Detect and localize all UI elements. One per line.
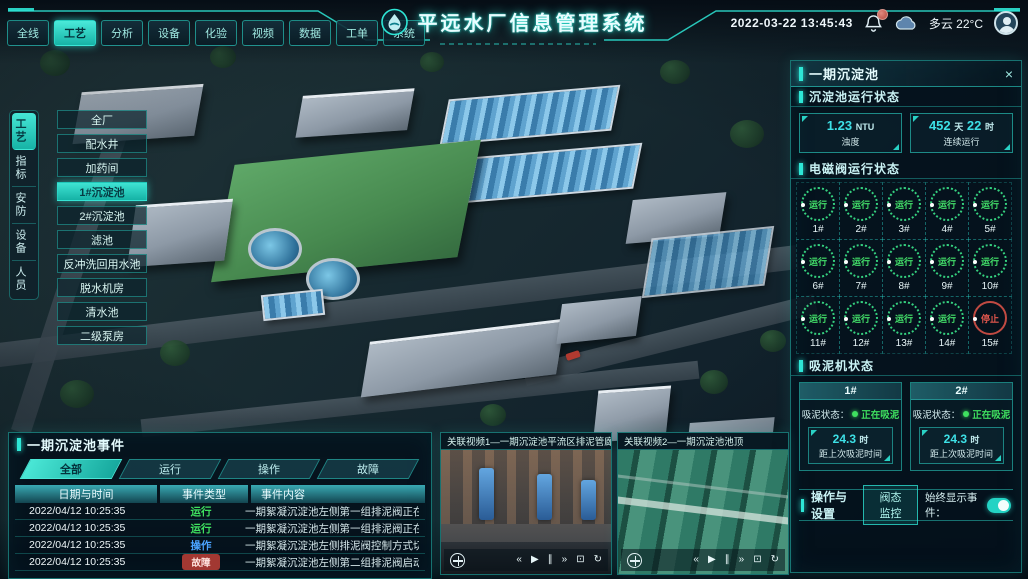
valve-id-label: 3# — [898, 224, 909, 235]
event-type-badge: 操作 — [191, 540, 212, 552]
column-header-type: 事件类型 — [160, 485, 248, 503]
valve-10#[interactable]: 运行10# — [968, 239, 1012, 297]
valve-ring-icon: 停止 — [973, 301, 1007, 335]
valve-ring-icon: 运行 — [887, 301, 921, 335]
valve-ring-icon: 运行 — [844, 187, 878, 221]
valve-12#[interactable]: 运行12# — [839, 296, 883, 354]
column-header-datetime: 日期与时间 — [15, 485, 157, 503]
valve-status-label: 运行 — [938, 312, 956, 325]
event-type: 故障 — [157, 554, 245, 570]
skip-back-icon[interactable]: « — [516, 555, 522, 565]
valve-status-label: 运行 — [809, 198, 827, 211]
valve-id-label: 6# — [812, 281, 823, 292]
valve-ring-icon: 运行 — [844, 301, 878, 335]
valve-id-label: 4# — [941, 224, 952, 235]
valve-id-label: 7# — [855, 281, 866, 292]
turbidity-value: 1.23 NTU — [827, 118, 874, 133]
valve-9#[interactable]: 运行9# — [925, 239, 969, 297]
side-tab-安防[interactable]: 安防 — [12, 187, 36, 224]
video-1-title: 关联视频1—一期沉淀池平流区排泥管廊 — [441, 433, 611, 450]
left-category-tabs: 工艺指标安防设备人员 — [9, 110, 39, 300]
alarm-bell-icon[interactable] — [864, 14, 883, 33]
event-content: 一期絮凝沉淀池左侧排泥阀控制方式切换为手动 — [245, 538, 419, 553]
valve-3#[interactable]: 运行3# — [882, 182, 926, 240]
event-type-badge: 故障 — [182, 554, 219, 570]
process-menu-item-滤池[interactable]: 滤池 — [57, 230, 147, 249]
nav-tab-工艺[interactable]: 工艺 — [54, 20, 96, 46]
mud-section-title: 吸泥机状态 — [809, 357, 874, 374]
process-menu-item-脱水机房[interactable]: 脱水机房 — [57, 278, 147, 297]
valve-section-title: 电磁阀运行状态 — [809, 160, 900, 177]
event-time: 2022/04/12 10:25:35 — [15, 522, 157, 534]
close-icon[interactable]: × — [1005, 67, 1013, 81]
run-status-section-header: 沉淀池运行状态 — [791, 87, 1021, 107]
valve-status-label: 停止 — [981, 312, 999, 325]
nav-tab-视频[interactable]: 视频 — [242, 20, 284, 46]
valve-id-label: 13# — [896, 338, 913, 349]
skip-back-icon[interactable]: « — [693, 555, 699, 565]
valve-status-label: 运行 — [852, 198, 870, 211]
valve-status-label: 运行 — [852, 255, 870, 268]
skip-forward-icon[interactable]: » — [739, 555, 745, 565]
mud-time-unit: 时 — [970, 435, 979, 445]
valve-status-label: 运行 — [809, 312, 827, 325]
nav-tab-全线[interactable]: 全线 — [7, 20, 49, 46]
valve-ring-icon: 运行 — [801, 301, 835, 335]
run-status-cards: 1.23 NTU 浊度 452 天 22 时 连续运行 — [791, 107, 1021, 159]
process-menu-item-二级泵房[interactable]: 二级泵房 — [57, 326, 147, 345]
events-table-body: 2022/04/12 10:25:35运行一期絮凝沉淀池左侧第一组排泥阀正在排泥… — [9, 503, 431, 571]
valve-status-label: 运行 — [938, 198, 956, 211]
mud-section-header: 吸泥机状态 — [791, 356, 1021, 376]
mud-time-unit: 时 — [859, 435, 868, 445]
valve-4#[interactable]: 运行4# — [925, 182, 969, 240]
side-tab-设备[interactable]: 设备 — [12, 224, 36, 261]
event-time: 2022/04/12 10:25:35 — [15, 556, 157, 568]
valve-status-label: 运行 — [895, 312, 913, 325]
turbidity-card: 1.23 NTU 浊度 — [799, 113, 902, 153]
valve-8#[interactable]: 运行8# — [882, 239, 926, 297]
uptime-days-unit: 天 — [954, 122, 963, 132]
mud-time-card: 24.3 时 距上次吸泥时间 — [808, 427, 893, 464]
valve-status-label: 运行 — [895, 255, 913, 268]
weather-cloud-icon — [894, 15, 918, 31]
event-content: 一期絮凝沉淀池左侧第二组排泥阀启动失败 — [245, 555, 419, 570]
event-time: 2022/04/12 10:25:35 — [15, 539, 157, 551]
event-table-row[interactable]: 2022/04/12 10:25:35运行一期絮凝沉淀池左侧第一组排泥阀正在排泥 — [15, 520, 425, 537]
event-type: 运行 — [157, 521, 245, 536]
ptz-control-icon[interactable] — [627, 553, 642, 568]
always-show-events-label: 始终显示事件： — [925, 490, 980, 520]
mud-time-number: 24.3 — [833, 432, 856, 446]
video-1-blue-pillar — [479, 468, 494, 520]
status-dot-icon — [963, 411, 969, 417]
mud-time-value: 24.3 时 — [833, 432, 869, 446]
video-2-controls: « ▶ ∥ » ⊡ ↻ — [621, 549, 785, 571]
right-panel-header: 一期沉淀池 × — [791, 61, 1021, 87]
event-table-row[interactable]: 2022/04/12 10:25:35运行一期絮凝沉淀池左侧第一组排泥阀正在排泥 — [15, 503, 425, 520]
mud-status-label: 吸泥状态： — [802, 407, 850, 421]
ops-settings-title: 操作与设置 — [811, 488, 856, 522]
nav-tab-数据[interactable]: 数据 — [289, 20, 331, 46]
valve-status-label: 运行 — [809, 255, 827, 268]
process-menu-item-全厂[interactable]: 全厂 — [57, 110, 147, 129]
events-panel: 一期沉淀池事件 全部运行操作故障 日期与时间 事件类型 事件内容 2022/04… — [8, 432, 432, 579]
run-status-title: 沉淀池运行状态 — [809, 88, 900, 105]
event-tab-运行[interactable]: 运行 — [119, 459, 222, 479]
playback-controls: « ▶ ∥ » ⊡ ↻ — [693, 555, 779, 565]
fullscreen-icon[interactable]: ⊡ — [576, 555, 584, 565]
ops-settings-section: 操作与设置 阀态监控 始终显示事件： — [799, 489, 1013, 521]
nav-tab-工单[interactable]: 工单 — [336, 20, 378, 46]
mud-time-caption: 距上次吸泥时间 — [819, 447, 882, 460]
mud-machine-cards: 1# 吸泥状态： 正在吸泥 24.3 时 距上次吸泥时间 2# 吸泥状态 — [791, 376, 1021, 477]
turbidity-unit: NTU — [856, 122, 875, 132]
play-icon[interactable]: ▶ — [708, 555, 716, 565]
valve-status-label: 运行 — [981, 198, 999, 211]
side-tab-工艺[interactable]: 工艺 — [12, 113, 36, 150]
event-type: 运行 — [157, 504, 245, 519]
valve-2#[interactable]: 运行2# — [839, 182, 883, 240]
related-video-panel-2: 关联视频2—一期沉淀池池顶 « ▶ ∥ » ⊡ ↻ — [617, 432, 789, 575]
mud-status-value: 正在吸泥 — [861, 407, 899, 421]
valve-ring-icon: 运行 — [973, 187, 1007, 221]
valve-section-header: 电磁阀运行状态 — [791, 159, 1021, 179]
event-content: 一期絮凝沉淀池左侧第一组排泥阀正在排泥 — [245, 504, 419, 519]
process-menu-item-清水池[interactable]: 清水池 — [57, 302, 147, 321]
mud-machine-card-2: 2# 吸泥状态： 正在吸泥 24.3 时 距上次吸泥时间 — [910, 382, 1013, 471]
pause-icon[interactable]: ∥ — [725, 555, 730, 565]
header-right-group: 2022-03-22 13:45:43 多云 22°C — [731, 0, 1018, 46]
title-block: 平远水厂信息管理系统 — [381, 7, 648, 36]
side-tab-人员[interactable]: 人员 — [12, 261, 36, 297]
mud-time-caption: 距上次吸泥时间 — [930, 447, 993, 460]
valve-monitor-button[interactable]: 阀态监控 — [863, 485, 918, 525]
event-table-row[interactable]: 2022/04/12 10:25:35故障一期絮凝沉淀池左侧第二组排泥阀启动失败 — [15, 554, 425, 571]
column-header-content: 事件内容 — [251, 485, 425, 503]
valve-15#[interactable]: 停止15# — [968, 296, 1012, 354]
uptime-value: 452 天 22 时 — [929, 118, 994, 133]
valve-status-label: 运行 — [981, 255, 999, 268]
mud-time-number: 24.3 — [944, 432, 967, 446]
mud-status-label: 吸泥状态： — [913, 407, 961, 421]
video-1-stream[interactable]: « ▶ ∥ » ⊡ ↻ — [441, 450, 611, 574]
nav-tab-设备[interactable]: 设备 — [148, 20, 190, 46]
valve-ring-icon: 运行 — [930, 301, 964, 335]
process-menu-item-配水井[interactable]: 配水井 — [57, 134, 147, 153]
video-2-title: 关联视频2—一期沉淀池池顶 — [618, 433, 788, 450]
right-panel-title: 一期沉淀池 — [809, 64, 999, 83]
event-content: 一期絮凝沉淀池左侧第一组排泥阀正在排泥 — [245, 521, 419, 536]
sedimentation-detail-panel: 一期沉淀池 × 沉淀池运行状态 1.23 NTU 浊度 452 天 22 时 — [790, 60, 1022, 573]
process-menu-item-反冲洗回用水池[interactable]: 反冲洗回用水池 — [57, 254, 147, 273]
always-show-events-toggle[interactable] — [987, 498, 1011, 513]
valve-ring-icon: 运行 — [930, 187, 964, 221]
process-area-menu: 全厂配水井加药间1#沉淀池2#沉淀池滤池反冲洗回用水池脱水机房清水池二级泵房 — [57, 110, 147, 345]
valve-ring-icon: 运行 — [801, 244, 835, 278]
mud-status-row: 吸泥状态： 正在吸泥 — [911, 407, 1012, 421]
valve-id-label: 12# — [853, 338, 870, 349]
turbidity-label: 浊度 — [841, 135, 859, 148]
fullscreen-icon[interactable]: ⊡ — [753, 555, 761, 565]
datetime-text: 2022-03-22 13:45:43 — [731, 16, 853, 30]
event-type-badge: 运行 — [191, 506, 212, 518]
mud-machine-id: 2# — [911, 383, 1012, 400]
playback-controls: « ▶ ∥ » ⊡ ↻ — [516, 555, 602, 565]
skip-forward-icon[interactable]: » — [562, 555, 568, 565]
app-logo-icon — [381, 8, 409, 36]
valve-id-label: 10# — [982, 281, 999, 292]
valve-status-grid: 运行1#运行2#运行3#运行4#运行5#运行6#运行7#运行8#运行9#运行10… — [791, 179, 1021, 356]
events-panel-title: 一期沉淀池事件 — [27, 435, 125, 454]
video-1-blue-pillar — [581, 480, 596, 520]
valve-ring-icon: 运行 — [844, 244, 878, 278]
video-2-stream[interactable]: « ▶ ∥ » ⊡ ↻ — [618, 450, 788, 574]
side-tab-指标[interactable]: 指标 — [12, 150, 36, 187]
related-video-panel-1: 关联视频1—一期沉淀池平流区排泥管廊 « ▶ ∥ » ⊡ ↻ — [440, 432, 612, 575]
event-tab-操作[interactable]: 操作 — [218, 459, 321, 479]
event-tab-label: 运行 — [159, 461, 181, 477]
nav-tab-化验[interactable]: 化验 — [195, 20, 237, 46]
valve-status-label: 运行 — [895, 198, 913, 211]
valve-status-label: 运行 — [938, 255, 956, 268]
event-filter-tabs: 全部运行操作故障 — [25, 459, 431, 479]
alert-badge — [877, 9, 888, 20]
event-type: 操作 — [157, 538, 245, 553]
pause-icon[interactable]: ∥ — [548, 555, 553, 565]
event-tab-label: 故障 — [357, 461, 379, 477]
events-panel-header: 一期沉淀池事件 — [9, 433, 431, 455]
video-1-blue-pillar — [537, 474, 552, 520]
nav-tab-分析[interactable]: 分析 — [101, 20, 143, 46]
event-time: 2022/04/12 10:25:35 — [15, 505, 157, 517]
valve-1#[interactable]: 运行1# — [796, 182, 840, 240]
main-nav-tabs: 全线工艺分析设备化验视频数据工单系统 — [7, 20, 425, 46]
event-tab-全部[interactable]: 全部 — [20, 459, 123, 479]
process-menu-item-1#沉淀池[interactable]: 1#沉淀池 — [57, 182, 147, 201]
valve-14#[interactable]: 运行14# — [925, 296, 969, 354]
valve-5#[interactable]: 运行5# — [968, 182, 1012, 240]
weather-text: 多云 22°C — [929, 15, 983, 32]
event-tab-故障[interactable]: 故障 — [317, 459, 420, 479]
valve-id-label: 1# — [812, 224, 823, 235]
event-type-badge: 运行 — [191, 523, 212, 535]
valve-id-label: 8# — [898, 281, 909, 292]
loop-icon[interactable]: ↻ — [771, 555, 779, 565]
play-icon[interactable]: ▶ — [531, 555, 539, 565]
event-tab-label: 操作 — [258, 461, 280, 477]
top-header: 全线工艺分析设备化验视频数据工单系统 平远水厂信息管理系统 2022-03-22… — [0, 0, 1028, 46]
turbidity-number: 1.23 — [827, 118, 852, 133]
valve-id-label: 15# — [982, 338, 999, 349]
video-1-controls: « ▶ ∥ » ⊡ ↻ — [444, 549, 608, 571]
mud-status-value: 正在吸泥 — [972, 407, 1010, 421]
valve-ring-icon: 运行 — [887, 244, 921, 278]
ptz-control-icon[interactable] — [450, 553, 465, 568]
toggle-knob — [998, 500, 1009, 511]
mud-machine-id: 1# — [800, 383, 901, 400]
mud-status-row: 吸泥状态： 正在吸泥 — [800, 407, 901, 421]
valve-id-label: 14# — [939, 338, 956, 349]
valve-13#[interactable]: 运行13# — [882, 296, 926, 354]
valve-status-label: 运行 — [852, 312, 870, 325]
valve-id-label: 2# — [855, 224, 866, 235]
uptime-hours-unit: 时 — [985, 122, 994, 132]
mud-time-card: 24.3 时 距上次吸泥时间 — [919, 427, 1004, 464]
video-2-walkway — [618, 493, 788, 529]
event-tab-label: 全部 — [60, 461, 82, 477]
valve-11#[interactable]: 运行11# — [796, 296, 840, 354]
loop-icon[interactable]: ↻ — [594, 555, 602, 565]
valve-id-label: 9# — [941, 281, 952, 292]
uptime-card: 452 天 22 时 连续运行 — [910, 113, 1013, 153]
valve-ring-icon: 运行 — [930, 244, 964, 278]
valve-7#[interactable]: 运行7# — [839, 239, 883, 297]
events-table-header: 日期与时间 事件类型 事件内容 — [9, 485, 431, 503]
app-root: 全线工艺分析设备化验视频数据工单系统 平远水厂信息管理系统 2022-03-22… — [0, 0, 1028, 579]
valve-ring-icon: 运行 — [801, 187, 835, 221]
valve-id-label: 11# — [810, 338, 826, 349]
uptime-label: 连续运行 — [943, 135, 979, 148]
status-dot-icon — [852, 411, 858, 417]
user-avatar[interactable] — [994, 11, 1018, 35]
process-menu-item-加药间[interactable]: 加药间 — [57, 158, 147, 177]
video-2-rail — [618, 470, 788, 502]
process-menu-item-2#沉淀池[interactable]: 2#沉淀池 — [57, 206, 147, 225]
valve-id-label: 5# — [984, 224, 995, 235]
valve-ring-icon: 运行 — [973, 244, 1007, 278]
uptime-hours: 22 — [967, 118, 981, 133]
valve-6#[interactable]: 运行6# — [796, 239, 840, 297]
mud-time-value: 24.3 时 — [944, 432, 980, 446]
page-title: 平远水厂信息管理系统 — [418, 7, 648, 36]
valve-ring-icon: 运行 — [887, 187, 921, 221]
uptime-days: 452 — [929, 118, 951, 133]
event-table-row[interactable]: 2022/04/12 10:25:35操作一期絮凝沉淀池左侧排泥阀控制方式切换为… — [15, 537, 425, 554]
mud-machine-card-1: 1# 吸泥状态： 正在吸泥 24.3 时 距上次吸泥时间 — [799, 382, 902, 471]
